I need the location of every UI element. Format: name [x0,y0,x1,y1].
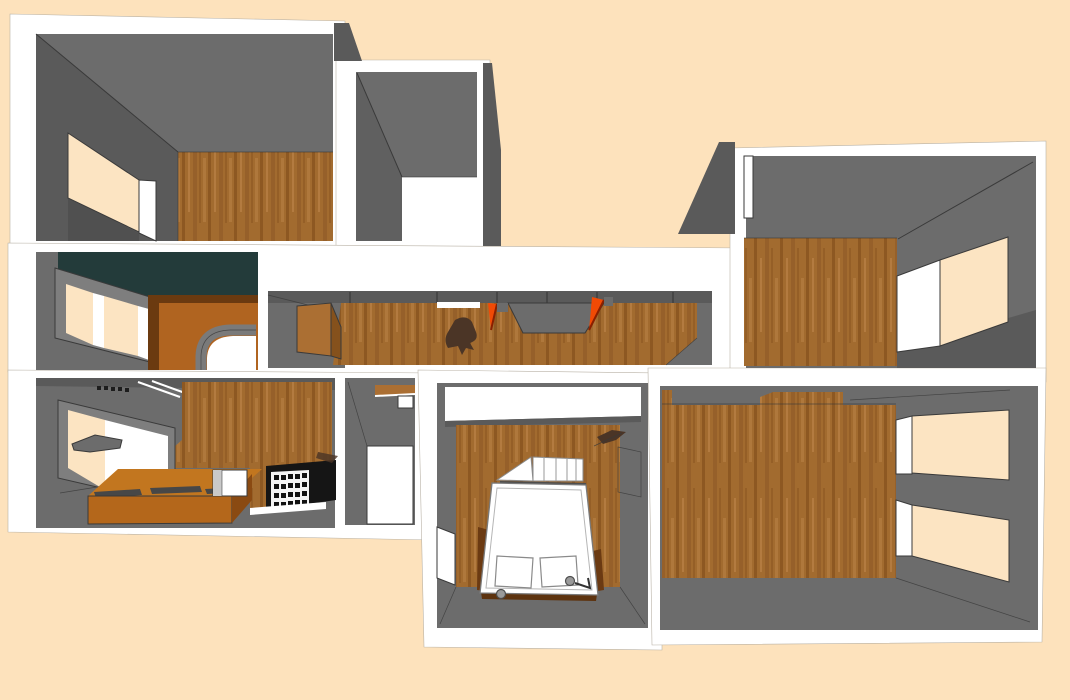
room-b-floor-white [402,177,477,241]
room-f-window-sill [897,260,940,352]
room-g-wood-floor [662,405,896,578]
bedroom-door-white [437,527,455,585]
living-room [268,291,712,368]
room-top-left [36,34,333,241]
hallway-window-pane-4 [138,306,149,360]
wedge-above-top-middle [334,23,362,61]
bed-knob-right [566,577,575,586]
room-bottom-right [660,386,1038,630]
wedge-right-of-top-middle [483,63,501,246]
room-f-door-strip [744,156,753,218]
room-f-wood-floor [744,238,897,366]
pillow-left [495,556,533,588]
room-top-middle [356,72,477,241]
arch-wall-panel-top-band [148,295,258,303]
bedroom [437,383,648,628]
corridor-cabinet-white [367,446,413,524]
room-g-wood-notch [760,392,843,405]
bedroom-wardrobe-top [445,387,641,421]
living-shelf [437,302,480,308]
living-sideboard-front [297,303,331,356]
room-a-window-sill [139,180,156,241]
hallway-arch-room [36,252,258,370]
hallway-window-pane-2 [93,293,104,348]
lamp-left-notch [497,303,508,312]
wedge-left-of-right-wing [678,142,735,234]
living-curtain-band [268,291,712,303]
corridor-nook [345,378,415,525]
corridor-upper-white [398,396,413,408]
floor-plan-render [0,0,1070,700]
bed-knob-left [497,590,506,599]
hallway-window-pane-3 [104,296,138,356]
arch-wall-panel-left-band [148,297,159,370]
room-top-right [744,156,1036,368]
counter-front [88,496,232,524]
room-g-wood-notch-left [662,390,672,405]
mini-cabinet [213,470,247,496]
lamp-right-notch [604,297,613,306]
room-g-window1-pane [912,410,1009,480]
living-right-wall [697,303,712,365]
kitchen-room [36,378,338,528]
room-a-wood-floor [178,152,333,241]
room-g-window2-sill [896,500,912,556]
room-g-window1-sill [896,416,912,474]
floor-plan-canvas [0,0,1070,700]
